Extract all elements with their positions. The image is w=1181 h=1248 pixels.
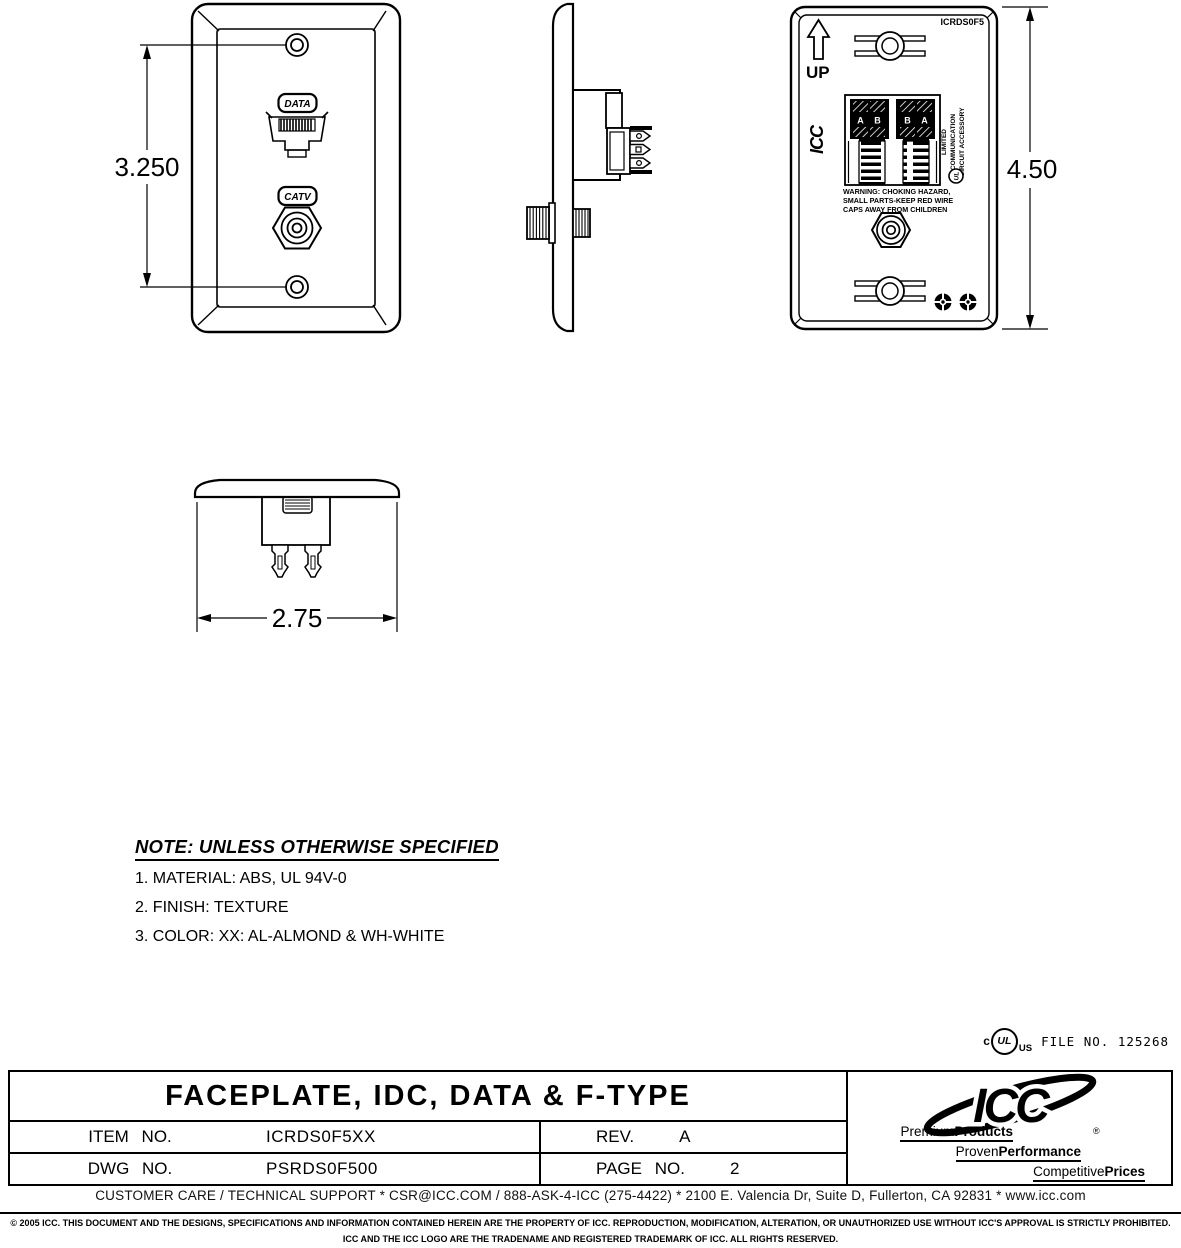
molded-part-number: ICRDS0F5 (940, 17, 984, 27)
title-block: FACEPLATE, IDC, DATA & F-TYPE ITEM NO. I… (8, 1070, 1173, 1186)
data-port-badge: DATA (279, 94, 317, 112)
footer-divider (0, 1212, 1181, 1214)
rev-cell: REV. A (539, 1122, 846, 1152)
tagline-bold: Prices (1104, 1164, 1145, 1179)
tagline-bold: Performance (998, 1144, 1081, 1159)
tagline-light: Competitive (1033, 1164, 1104, 1179)
tagline-light: Proven (956, 1144, 999, 1159)
ul-mark-letters: UL (954, 172, 961, 181)
front-height-dimension: 3.250 (114, 45, 286, 287)
ul-file-number: FILE NO. 125268 (1041, 1034, 1169, 1049)
ul-listed-mark-icon: UL (991, 1028, 1018, 1055)
f-connector-front-icon (273, 208, 321, 249)
rev-label: REV. (596, 1127, 634, 1147)
front-height-dim-label: 3.250 (114, 152, 179, 182)
ul-us-label: US (1019, 1043, 1032, 1054)
idc-jack-top-icon (262, 496, 330, 577)
top-width-dim-label: 2.75 (272, 603, 323, 633)
page-no-cell: PAGE NO. 2 (539, 1154, 846, 1184)
page-no-label: PAGE NO. (596, 1159, 685, 1179)
mold-stamp-icon (935, 294, 952, 311)
tagline-bold: Products (954, 1124, 1013, 1139)
drawing-title: FACEPLATE, IDC, DATA & F-TYPE (10, 1072, 846, 1122)
back-view-drawing: ICRDS0F5 UP ICC A B B A (780, 0, 1080, 340)
faceplate-top-profile (195, 480, 399, 497)
note-item: 2. FINISH: TEXTURE (135, 896, 499, 919)
notes-heading: NOTE: UNLESS OTHERWISE SPECIFIED (135, 836, 499, 861)
back-height-dim-label: 4.50 (1007, 154, 1058, 184)
catv-port-badge: CATV (279, 187, 317, 205)
ul-recognized-mark-icon: UL (949, 169, 963, 183)
dwg-no-value: PSRDS0F500 (250, 1154, 539, 1184)
idc-connector-side-icon (573, 90, 652, 180)
data-badge-label: DATA (284, 99, 310, 110)
up-label: UP (806, 63, 830, 82)
title-block-left: FACEPLATE, IDC, DATA & F-TYPE ITEM NO. I… (10, 1072, 848, 1184)
registered-mark: ® (1093, 1126, 1100, 1136)
mold-stamp-icon (960, 294, 977, 311)
side-view-drawing (510, 0, 680, 340)
front-view-drawing: DATA CATV (100, 0, 460, 345)
side-text-line: CIRCUIT ACCESSORY (959, 107, 966, 177)
drawing-sheet: DATA CATV (0, 0, 1181, 1248)
side-text-line: COMMUNICATION (950, 114, 957, 171)
note-item: 1. MATERIAL: ABS, UL 94V-0 (135, 867, 499, 890)
screw-boss-top-icon (855, 32, 925, 60)
ul-c-label: c (983, 1034, 990, 1048)
screw-boss-bottom-icon (855, 277, 925, 305)
customer-care-line: CUSTOMER CARE / TECHNICAL SUPPORT * CSR@… (0, 1188, 1181, 1203)
faceplate-front-outline (192, 4, 400, 332)
ul-certification-row: c UL US FILE NO. 125268 (983, 1026, 1169, 1056)
dwg-no-label: DWG NO. (10, 1154, 250, 1184)
catv-badge-label: CATV (284, 192, 312, 203)
table-row: DWG NO. PSRDS0F500 PAGE NO. 2 (10, 1154, 846, 1184)
warning-line: WARNING: CHOKING HAZARD, (843, 187, 950, 196)
tagline-proven-performance: ProvenPerformance (956, 1144, 1081, 1162)
warning-line: SMALL PARTS-KEEP RED WIRE (843, 196, 953, 205)
idc-letter: B (904, 116, 911, 126)
limited-circuit-accessory-text: LIMITED COMMUNICATION CIRCUIT ACCESSORY (941, 107, 966, 177)
rev-value: A (679, 1127, 690, 1147)
up-arrow-icon (808, 20, 829, 59)
idc-letter: A (921, 116, 928, 126)
item-no-label: ITEM NO. (10, 1122, 250, 1152)
f-connector-back-icon (872, 213, 910, 247)
choking-hazard-warning: WARNING: CHOKING HAZARD, SMALL PARTS-KEE… (843, 187, 953, 214)
idc-letter: B (874, 116, 881, 126)
note-item: 3. COLOR: XX: AL-ALMOND & WH-WHITE (135, 925, 499, 948)
screw-hole-icon (286, 34, 308, 298)
faceplate-side-profile (553, 4, 573, 331)
icc-molded-logo: ICC (807, 124, 827, 154)
ul-mark-letters: UL (997, 1035, 1011, 1047)
copyright-line-2: ICC AND THE ICC LOGO ARE THE TRADENAME A… (0, 1234, 1181, 1244)
tagline-competitive-prices: CompetitivePrices (1033, 1164, 1145, 1182)
tagline-light: Premium (900, 1124, 954, 1139)
item-no-value: ICRDS0F5XX (250, 1122, 539, 1152)
copyright-line-1: © 2005 ICC. THIS DOCUMENT AND THE DESIGN… (0, 1218, 1181, 1228)
rj45-jack-icon (266, 112, 328, 157)
idc-terminal-block-icon: A B B A (845, 95, 940, 186)
top-view-drawing: 2.75 (160, 460, 450, 640)
idc-letter: A (857, 116, 864, 126)
page-no-value: 2 (730, 1159, 739, 1179)
notes-block: NOTE: UNLESS OTHERWISE SPECIFIED 1. MATE… (135, 836, 499, 948)
icc-logo-cell: ICC ® PremiumProducts ProvenPerformance … (848, 1072, 1171, 1184)
tagline-premium-products: PremiumProducts (900, 1124, 1013, 1142)
table-row: ITEM NO. ICRDS0F5XX REV. A (10, 1122, 846, 1154)
side-text-line: LIMITED (941, 129, 948, 155)
back-height-dimension: 4.50 (1002, 7, 1057, 329)
